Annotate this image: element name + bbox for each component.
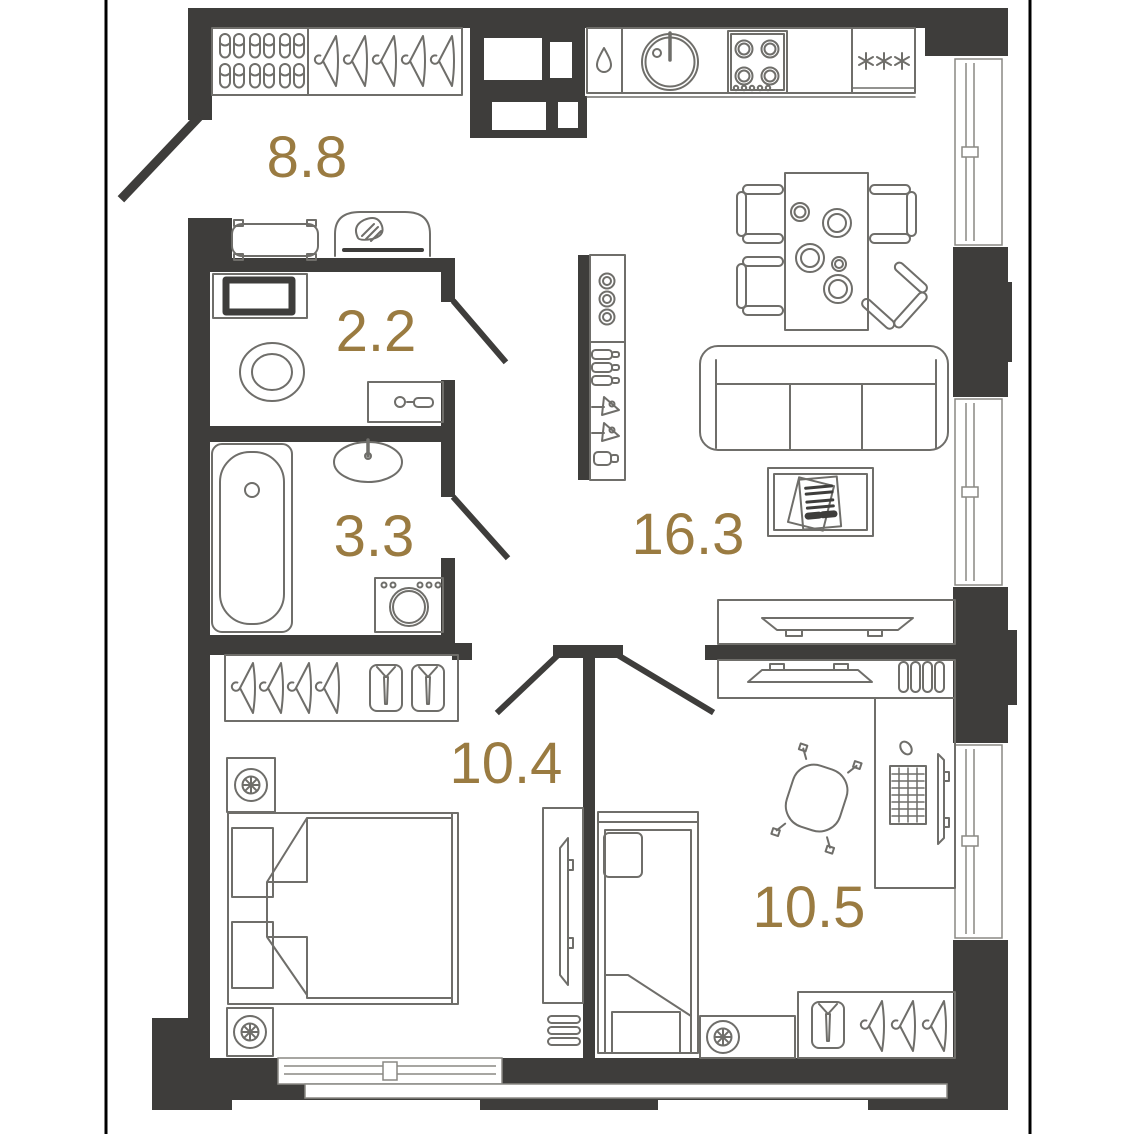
wall-top-right-corner xyxy=(925,28,1008,56)
wardrobe-icon xyxy=(798,992,955,1058)
toilet-icon xyxy=(240,343,304,401)
wash-basin-icon xyxy=(334,440,402,482)
nightstand-lamp-icon xyxy=(227,758,275,812)
wall-bar xyxy=(578,255,590,480)
door-leaf-icon xyxy=(455,303,504,360)
tv-stand-icon xyxy=(718,600,955,644)
slat-shelf-icon xyxy=(899,662,944,692)
window-icon xyxy=(955,59,1002,245)
console-mirror-icon xyxy=(335,212,430,256)
nightstand-lamp-icon xyxy=(700,1016,795,1058)
pillow-icon xyxy=(604,833,642,877)
tv-icon xyxy=(560,838,573,985)
cabinet-icon xyxy=(213,274,307,318)
wall-pillar-right-1 xyxy=(953,247,1008,397)
bench-icon xyxy=(232,220,318,260)
magazine-icon xyxy=(788,476,841,530)
glass-icon xyxy=(600,274,615,325)
wall-corridor-1 xyxy=(441,262,455,302)
wall-bedroom-left xyxy=(188,655,210,1058)
hanger-icon xyxy=(232,663,339,713)
wall-left-block xyxy=(188,218,232,258)
mouse-icon xyxy=(898,739,914,756)
area-label-living-kitchen: 16.3 xyxy=(632,502,745,567)
wall-bottom-tab-1 xyxy=(152,1096,232,1110)
dishwasher-drop-icon xyxy=(597,48,611,72)
window-icon xyxy=(955,399,1002,585)
area-label-bedroom-2: 10.5 xyxy=(753,875,866,940)
floor-plan: 8.8 2.2 3.3 16.3 10.4 10.5 xyxy=(0,0,1134,1134)
door-leaf-icon xyxy=(621,657,711,711)
freezer-asterisk-icon xyxy=(859,53,909,69)
slippers-icon xyxy=(220,34,304,88)
wall-wc-top xyxy=(210,258,455,272)
tv-icon xyxy=(748,664,872,682)
shirt-icon xyxy=(812,1002,844,1048)
chair-icon xyxy=(870,185,916,243)
chair-icon xyxy=(737,185,783,243)
single-bed-icon xyxy=(598,812,698,1053)
chair-icon xyxy=(860,261,933,335)
wall-pillar-right-2-bump xyxy=(1003,630,1017,705)
monitor-icon xyxy=(938,754,949,844)
keyboard-icon xyxy=(890,766,926,824)
door-leaf-icon xyxy=(124,119,197,196)
kitchen-sink-icon xyxy=(642,33,698,90)
wall-living-bedroom2-divider xyxy=(705,645,955,660)
area-label-wc: 2.2 xyxy=(336,299,417,364)
area-label-bathroom: 3.3 xyxy=(334,504,415,569)
shaker-icon xyxy=(594,452,618,465)
tv-icon xyxy=(762,618,913,636)
wall-bath-bottom xyxy=(188,635,455,655)
hallway-wardrobe xyxy=(308,28,462,95)
coffee-table-icon xyxy=(768,468,873,536)
tv-stand-icon xyxy=(718,660,955,698)
wall-pillar-right-1-bump xyxy=(1003,282,1012,362)
door-leaf-icon xyxy=(499,657,556,711)
facade-ledge xyxy=(305,1084,947,1098)
sofa-icon xyxy=(700,346,948,450)
fridge-freezer-icon xyxy=(852,28,915,93)
wall-top xyxy=(190,8,1008,28)
wall-wc-bath-divider xyxy=(210,426,455,442)
office-chair-icon xyxy=(771,744,861,854)
wall-step xyxy=(452,643,472,660)
kitchen-counter xyxy=(587,28,915,97)
wash-basin-icon xyxy=(368,382,443,422)
stove-icon xyxy=(728,31,787,93)
bar-shelf-icon xyxy=(590,255,625,480)
shirt-icon xyxy=(370,665,444,711)
door-leaf-icon xyxy=(455,499,506,556)
dining-set xyxy=(737,173,933,335)
floor-plan-canvas: 8.8 2.2 3.3 16.3 10.4 10.5 xyxy=(0,0,1134,1134)
double-bed-icon xyxy=(228,813,458,1004)
shoe-cabinet xyxy=(212,28,308,95)
window-icon xyxy=(955,745,1002,938)
wall-bedroom2-left xyxy=(583,658,595,1058)
chair-icon xyxy=(737,257,783,315)
desk-icon xyxy=(875,698,955,888)
bathtub-icon xyxy=(212,444,292,632)
wall-entry-jamb xyxy=(188,8,212,120)
martini-icon xyxy=(592,397,619,441)
wall-pillar-right-2 xyxy=(953,587,1008,743)
area-label-bedroom: 10.4 xyxy=(450,731,563,796)
wall-door-stub xyxy=(553,645,623,658)
hanger-icon xyxy=(315,36,454,86)
wall-corridor-3 xyxy=(441,437,455,497)
bottle-icon xyxy=(592,350,619,385)
washing-machine-icon xyxy=(375,578,443,632)
nightstand-lamp-icon xyxy=(227,1008,273,1056)
slat-shelf-icon xyxy=(548,1016,580,1045)
area-label-hallway: 8.8 xyxy=(267,125,348,190)
wardrobe-icon xyxy=(225,655,458,721)
window-icon xyxy=(278,1058,502,1084)
plate-icon xyxy=(791,203,852,303)
wall-bottom-right-corner xyxy=(953,940,1008,1100)
wall-left xyxy=(188,218,210,655)
hanger-icon xyxy=(861,1001,946,1051)
tv-stand-icon xyxy=(543,808,583,1003)
